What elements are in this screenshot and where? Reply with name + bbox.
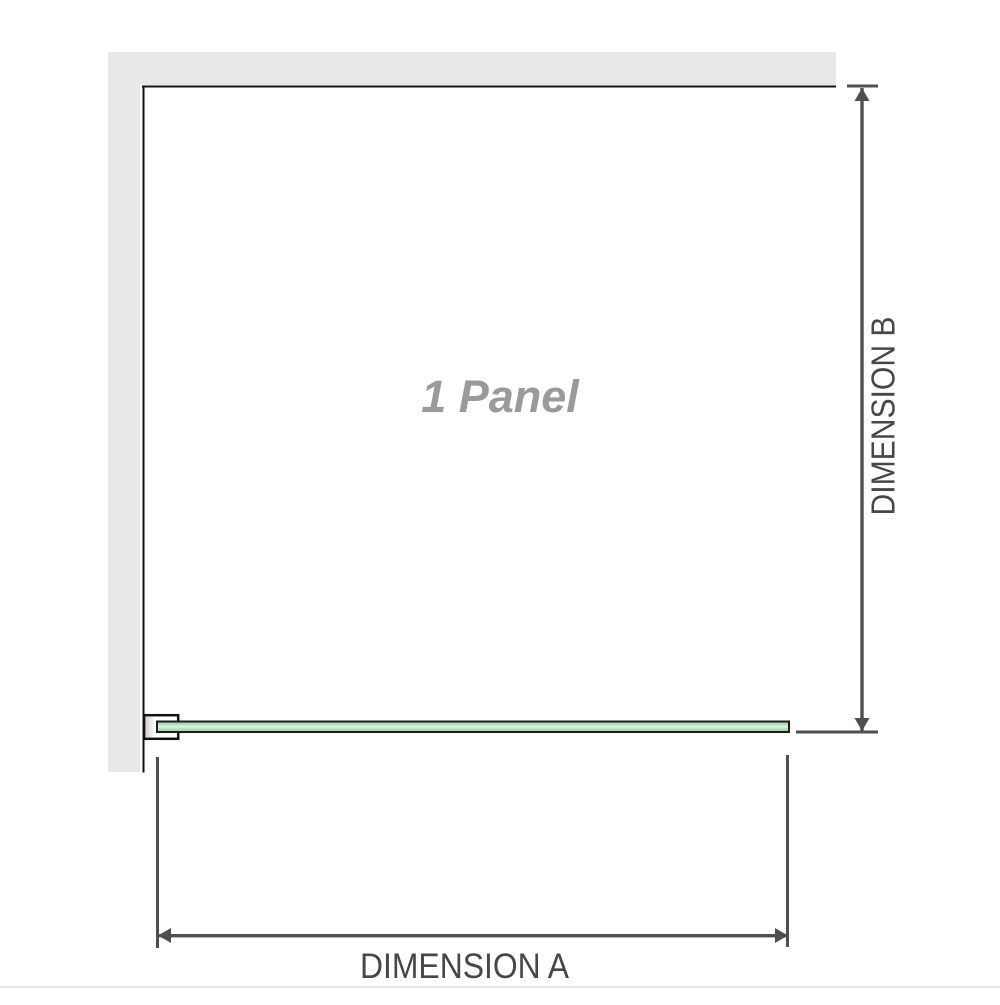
- svg-text:1 Panel: 1 Panel: [421, 371, 580, 422]
- svg-text:DIMENSION A: DIMENSION A: [360, 947, 570, 986]
- svg-text:DIMENSION B: DIMENSION B: [865, 317, 902, 516]
